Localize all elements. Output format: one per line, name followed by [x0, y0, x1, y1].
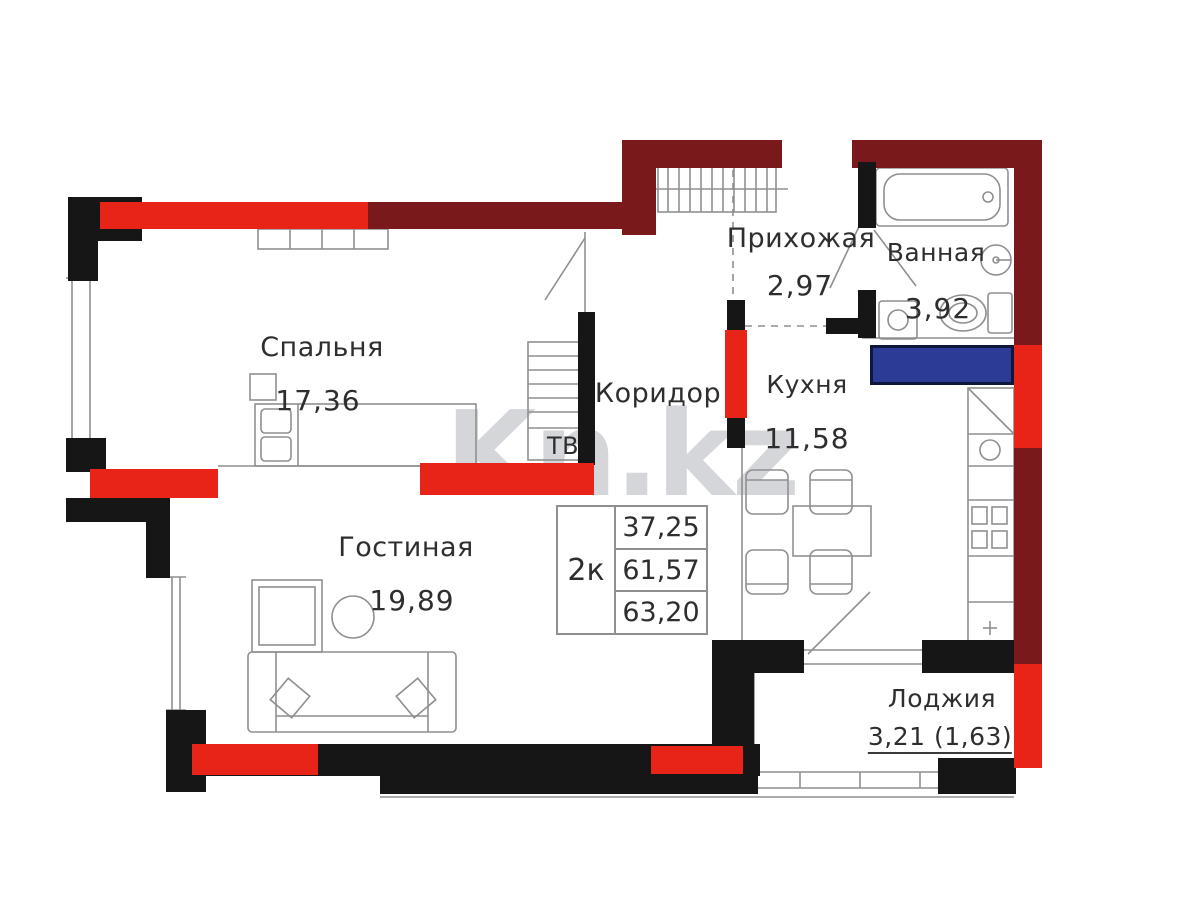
stove-burner — [992, 507, 1007, 524]
kitchen-table-chairs — [746, 470, 871, 594]
wall-segment — [66, 438, 106, 472]
wall-segment — [1014, 140, 1042, 350]
sofa — [248, 652, 456, 732]
room-area-bedroom: 17,36 — [275, 384, 360, 417]
room-area-kitchen: 11,58 — [764, 422, 849, 455]
room-area-loggia: 3,21 (1,63) — [868, 722, 1012, 751]
wall-segment — [712, 640, 754, 758]
hallway-wardrobe — [648, 167, 788, 212]
stove-burner — [972, 531, 987, 548]
wall-segment — [858, 162, 876, 228]
unit-area-row: 61,57 — [616, 550, 706, 593]
room-area-bathroom: 3,92 — [905, 292, 971, 325]
wall-segment-red — [725, 330, 747, 418]
wall-segment-red — [192, 744, 318, 775]
wall-segment-red — [100, 202, 368, 229]
wall-segment-red — [1014, 345, 1042, 448]
loggia-door — [804, 592, 922, 664]
sofa-cushion — [396, 678, 435, 717]
wall-segment — [727, 300, 745, 334]
unit-area-row: 37,25 — [616, 507, 706, 550]
room-area-hallway: 2,97 — [767, 269, 833, 302]
bathtub — [876, 168, 1008, 226]
kitchen-counter — [968, 388, 1014, 654]
fridge-mark — [968, 388, 1014, 434]
wall-segment — [922, 640, 1014, 673]
unit-type: 2к — [558, 507, 616, 633]
wall-segment — [578, 312, 595, 465]
unit-area-row: 63,20 — [616, 592, 706, 633]
room-area-living: 19,89 — [369, 584, 454, 617]
floor-plan: Kn.kz — [0, 0, 1200, 898]
shaft-block — [870, 345, 1014, 385]
loggia-door-swing — [808, 592, 870, 654]
wall-segment — [380, 772, 758, 794]
stove-burner — [972, 507, 987, 524]
bedroom-window — [66, 278, 96, 440]
room-label-loggia: Лоджия — [888, 684, 996, 713]
wall-segment — [146, 498, 170, 578]
room-label-bedroom: Спальня — [260, 332, 384, 363]
wall-segment — [1014, 445, 1042, 667]
wall-segment — [68, 197, 98, 281]
wall-segment — [368, 202, 630, 229]
wall-segment — [938, 758, 1016, 794]
room-label-bathroom: Ванная — [887, 238, 986, 267]
side-table — [252, 580, 322, 652]
room-label-kitchen: Кухня — [766, 370, 847, 399]
nightstand — [250, 374, 276, 400]
wall-segment-red — [1014, 664, 1042, 768]
wall-segment — [826, 318, 876, 334]
room-label-hallway: Прихожая — [727, 223, 876, 254]
wall-segment-red — [420, 463, 594, 495]
wall-segment — [727, 416, 745, 448]
wall-segment-red — [651, 746, 743, 774]
unit-area-table: 2к 37,25 61,57 63,20 — [556, 505, 708, 635]
stove-burner — [992, 531, 1007, 548]
room-label-corridor: Коридор — [595, 378, 721, 409]
tv-label: ТВ — [547, 432, 579, 460]
room-label-living: Гостиная — [338, 532, 474, 563]
round-table — [332, 596, 374, 638]
living-window — [166, 577, 186, 710]
bathroom-sink — [981, 245, 1011, 275]
bedroom-door-swing — [545, 238, 585, 300]
wall-segment-red — [90, 469, 218, 498]
kitchen-sink — [980, 440, 1000, 460]
